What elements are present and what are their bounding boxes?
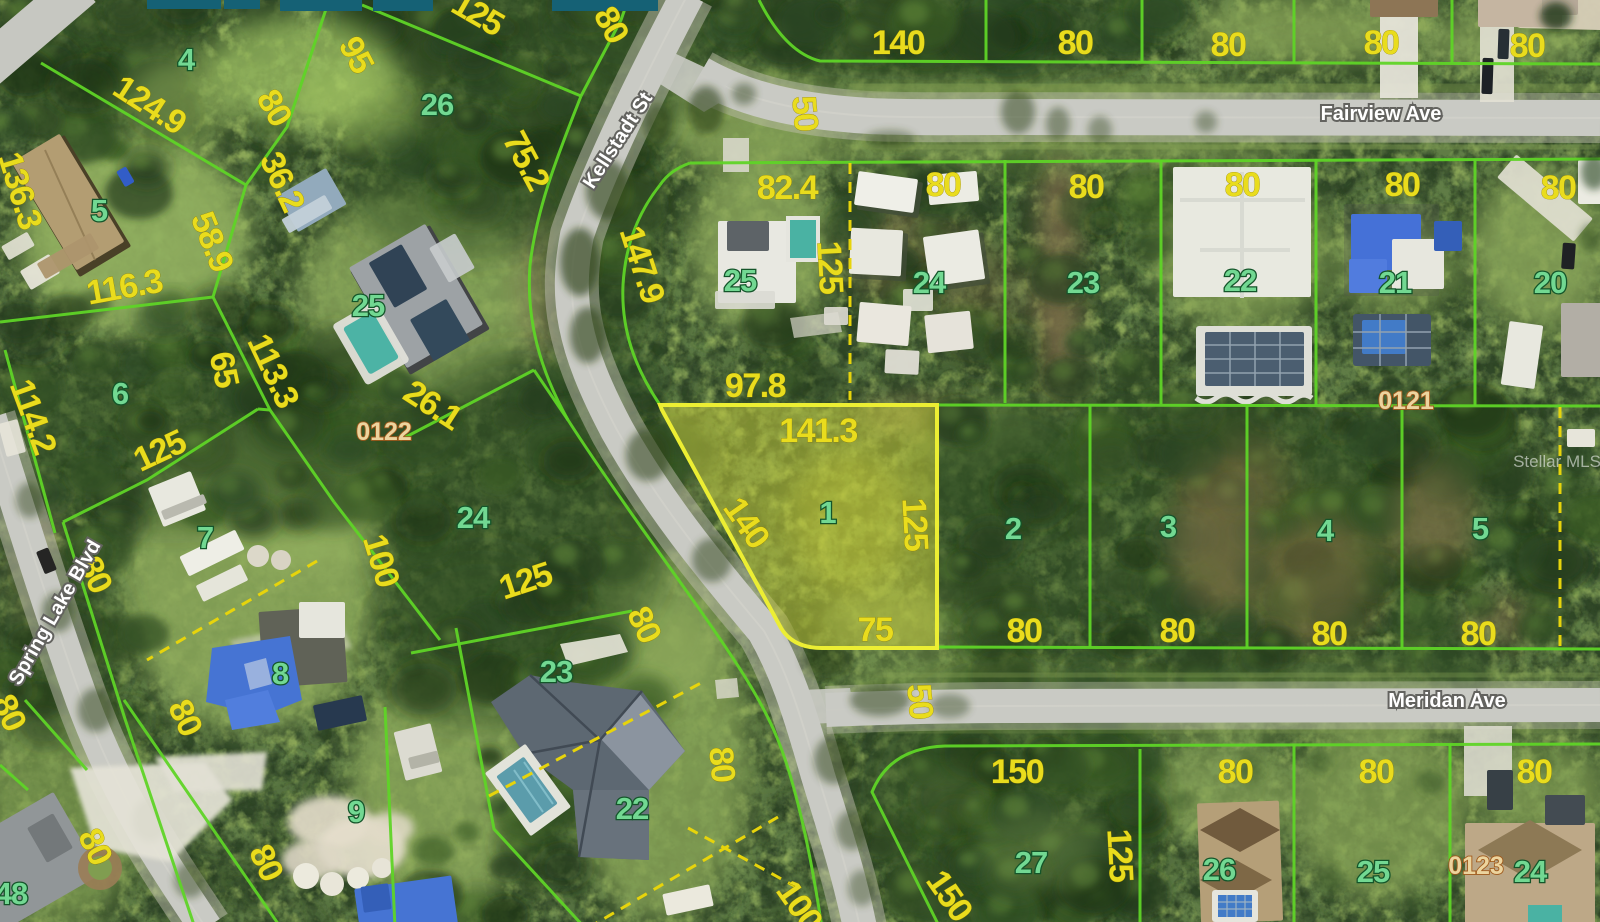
svg-text:80: 80: [1364, 24, 1399, 62]
svg-text:23: 23: [540, 654, 573, 689]
svg-text:0122: 0122: [356, 418, 412, 446]
svg-text:80: 80: [1225, 166, 1260, 204]
svg-text:2: 2: [1005, 511, 1021, 546]
svg-text:6: 6: [112, 376, 129, 411]
svg-text:80: 80: [1510, 27, 1545, 65]
svg-text:80: 80: [1007, 612, 1042, 650]
svg-text:80: 80: [1461, 615, 1496, 653]
svg-text:80: 80: [1541, 169, 1576, 207]
svg-text:5: 5: [1472, 511, 1489, 546]
svg-text:25: 25: [724, 263, 757, 298]
svg-text:80: 80: [926, 166, 961, 204]
svg-text:125: 125: [1099, 828, 1140, 883]
svg-text:21: 21: [1379, 265, 1412, 300]
svg-text:140: 140: [872, 24, 925, 62]
svg-text:80: 80: [1359, 753, 1394, 791]
svg-text:80: 80: [1069, 168, 1104, 206]
svg-text:80: 80: [1160, 612, 1195, 650]
svg-text:8: 8: [272, 656, 289, 691]
svg-text:23: 23: [1067, 265, 1100, 300]
svg-text:1: 1: [819, 495, 836, 530]
svg-text:80: 80: [1211, 26, 1246, 64]
svg-text:80: 80: [701, 745, 742, 784]
svg-text:80: 80: [1218, 753, 1253, 791]
svg-text:75: 75: [858, 611, 893, 649]
svg-text:5: 5: [91, 193, 108, 228]
svg-text:Stellar MLS: Stellar MLS: [1513, 452, 1600, 471]
svg-text:80: 80: [1385, 166, 1420, 204]
svg-text:4: 4: [178, 42, 196, 77]
svg-text:26: 26: [421, 87, 454, 122]
svg-text:50: 50: [784, 94, 825, 133]
svg-text:22: 22: [1224, 263, 1256, 298]
svg-text:24: 24: [1514, 854, 1548, 889]
svg-text:26: 26: [1203, 852, 1236, 887]
svg-text:25: 25: [352, 288, 385, 323]
svg-text:9: 9: [348, 794, 365, 829]
svg-text:82.4: 82.4: [757, 169, 819, 207]
svg-text:97.8: 97.8: [725, 367, 786, 405]
svg-text:48: 48: [0, 876, 28, 911]
svg-text:80: 80: [1312, 615, 1347, 653]
svg-text:80: 80: [1058, 24, 1093, 62]
svg-text:80: 80: [1517, 753, 1552, 791]
svg-text:150: 150: [991, 753, 1044, 791]
svg-text:24: 24: [457, 500, 491, 535]
svg-text:Fairview Ave: Fairview Ave: [1321, 103, 1442, 125]
svg-text:125: 125: [894, 497, 935, 552]
svg-text:25: 25: [1357, 854, 1390, 889]
svg-text:24: 24: [913, 265, 947, 300]
svg-text:27: 27: [1015, 845, 1047, 880]
svg-text:125: 125: [809, 240, 850, 295]
svg-text:3: 3: [1160, 509, 1177, 544]
svg-text:4: 4: [1317, 513, 1335, 548]
svg-text:141.3: 141.3: [779, 412, 857, 450]
svg-text:Meridan Ave: Meridan Ave: [1388, 690, 1505, 712]
svg-text:22: 22: [616, 791, 648, 826]
svg-text:0123: 0123: [1448, 852, 1504, 880]
svg-text:0121: 0121: [1378, 387, 1434, 415]
svg-text:7: 7: [197, 520, 213, 555]
svg-text:50: 50: [899, 682, 940, 721]
svg-text:20: 20: [1534, 265, 1566, 300]
